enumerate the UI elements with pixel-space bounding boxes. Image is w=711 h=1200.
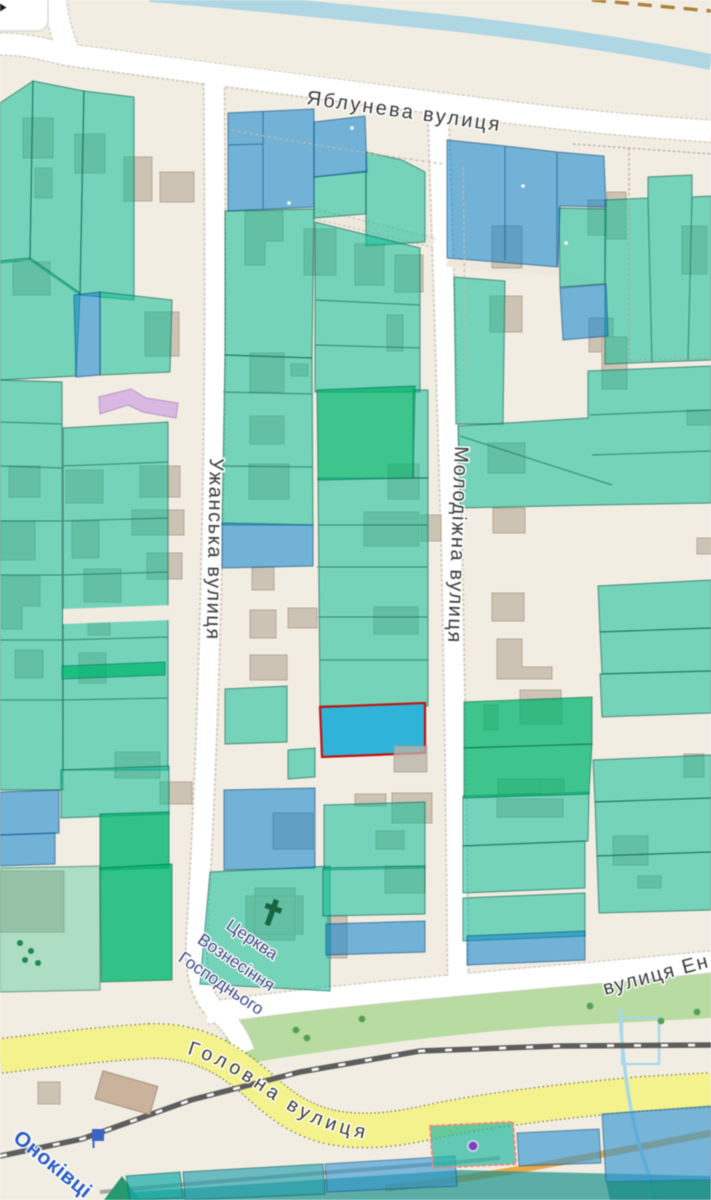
svg-text:Ужанська вулиця: Ужанська вулиця — [202, 458, 227, 641]
